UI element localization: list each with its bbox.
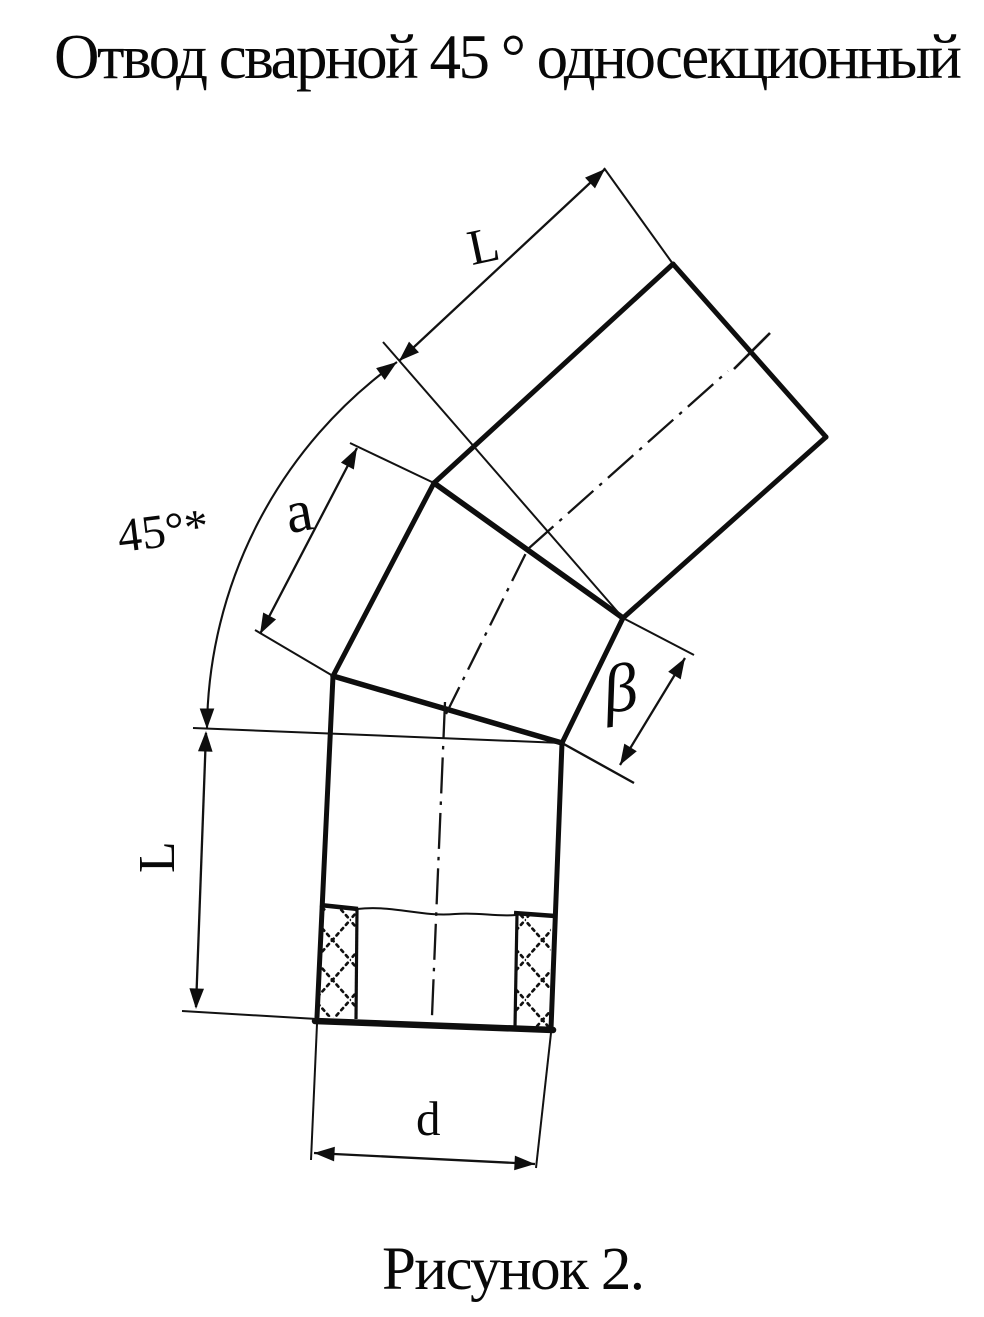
- svg-text:L: L: [129, 841, 186, 873]
- svg-text:d: d: [416, 1091, 441, 1146]
- svg-text:Отвод сварной 45 ° односекцион: Отвод сварной 45 ° односекционный: [54, 22, 962, 92]
- svg-text:45°*: 45°*: [115, 499, 212, 563]
- svg-text:Рисунок 2.: Рисунок 2.: [382, 1236, 645, 1303]
